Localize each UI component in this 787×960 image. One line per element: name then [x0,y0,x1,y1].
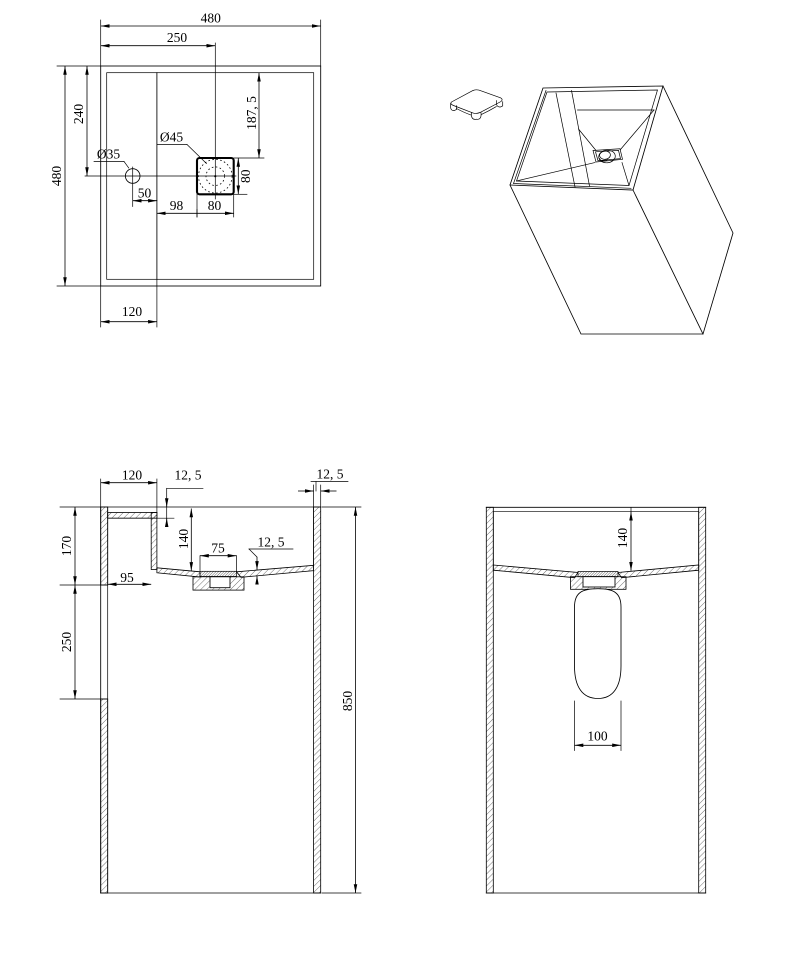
dim-label-overall-height: 850 [340,691,355,712]
dim-label-drain-opening: 75 [211,541,225,556]
front-section-view: 120 12, 5 170 250 140 75 12, 5 95 12, 5 … [59,467,361,894]
dim-label-channel-inner: 95 [120,570,134,585]
dim-label-top-to-center: 240 [71,104,86,125]
dim-label-pipe-width: 100 [587,728,608,743]
front-bowl-floor-right [237,565,314,577]
dim-wall-thickness-right [298,482,348,492]
front-drain-flange [200,571,237,576]
dim-label-center-offset: 250 [167,30,188,45]
dim-label-channel-depth: 170 [59,536,74,557]
front-bowl-floor-left [157,568,200,577]
side-section-view: 140 100 [486,507,705,893]
dim-label-bowl-depth-front: 140 [176,529,191,550]
dim-label-channel-width-plan: 120 [122,304,143,319]
basin-body-iso [510,86,733,334]
side-bowl-floor-right [618,565,699,578]
dim-label-channel-width-front: 120 [122,468,143,483]
front-outline [101,507,321,893]
dim-label-faucet-offset: 50 [138,186,152,201]
front-left-wall-lower [101,699,108,893]
side-right-wall [699,507,706,893]
side-drain-flange [578,572,618,577]
isometric-view [450,86,733,334]
dim-label-drain-sq-v: 80 [238,169,253,183]
dim-label-overall-depth: 480 [49,166,64,187]
front-left-wall-upper [101,507,108,585]
dim-label-drain-sq-h: 80 [208,198,222,213]
technical-drawing-page: 480 250 240 480 Ø45 Ø35 187, 5 80 50 98 … [0,0,787,960]
dim-label-deck-thickness: 12, 5 [175,468,202,483]
drain-center-mark [214,175,216,177]
dim-label-wall-thickness: 12, 5 [317,467,344,482]
dim-label-seg-98: 98 [170,198,184,213]
side-outline [486,507,705,893]
front-channel-deck [108,513,157,519]
dim-label-bottom-thickness: 12, 5 [258,534,285,549]
side-left-wall [486,507,493,893]
drain-cover-piece [450,90,502,120]
plan-view: 480 250 240 480 Ø45 Ø35 187, 5 80 50 98 … [49,11,321,328]
dim-label-bowl-depth-side: 140 [615,528,630,549]
dim-label-faucet-dia: Ø35 [97,147,120,162]
dim-label-overall-width: 480 [201,11,222,26]
dim-label-drain-dia: Ø45 [160,130,183,145]
side-drain-trap-bore [583,577,615,587]
dim-label-rim-to-drain: 187, 5 [244,96,259,130]
drain-pipe-capsule [575,589,622,699]
dim-label-opening-height: 250 [59,632,74,653]
leader-bottom-thickness [249,549,293,583]
front-channel-wall [151,513,157,570]
drawing-canvas: 480 250 240 480 Ø45 Ø35 187, 5 80 50 98 … [0,0,787,960]
front-right-wall [314,507,321,893]
front-drain-trap-bore [210,577,230,588]
side-bowl-floor-left [493,565,578,578]
